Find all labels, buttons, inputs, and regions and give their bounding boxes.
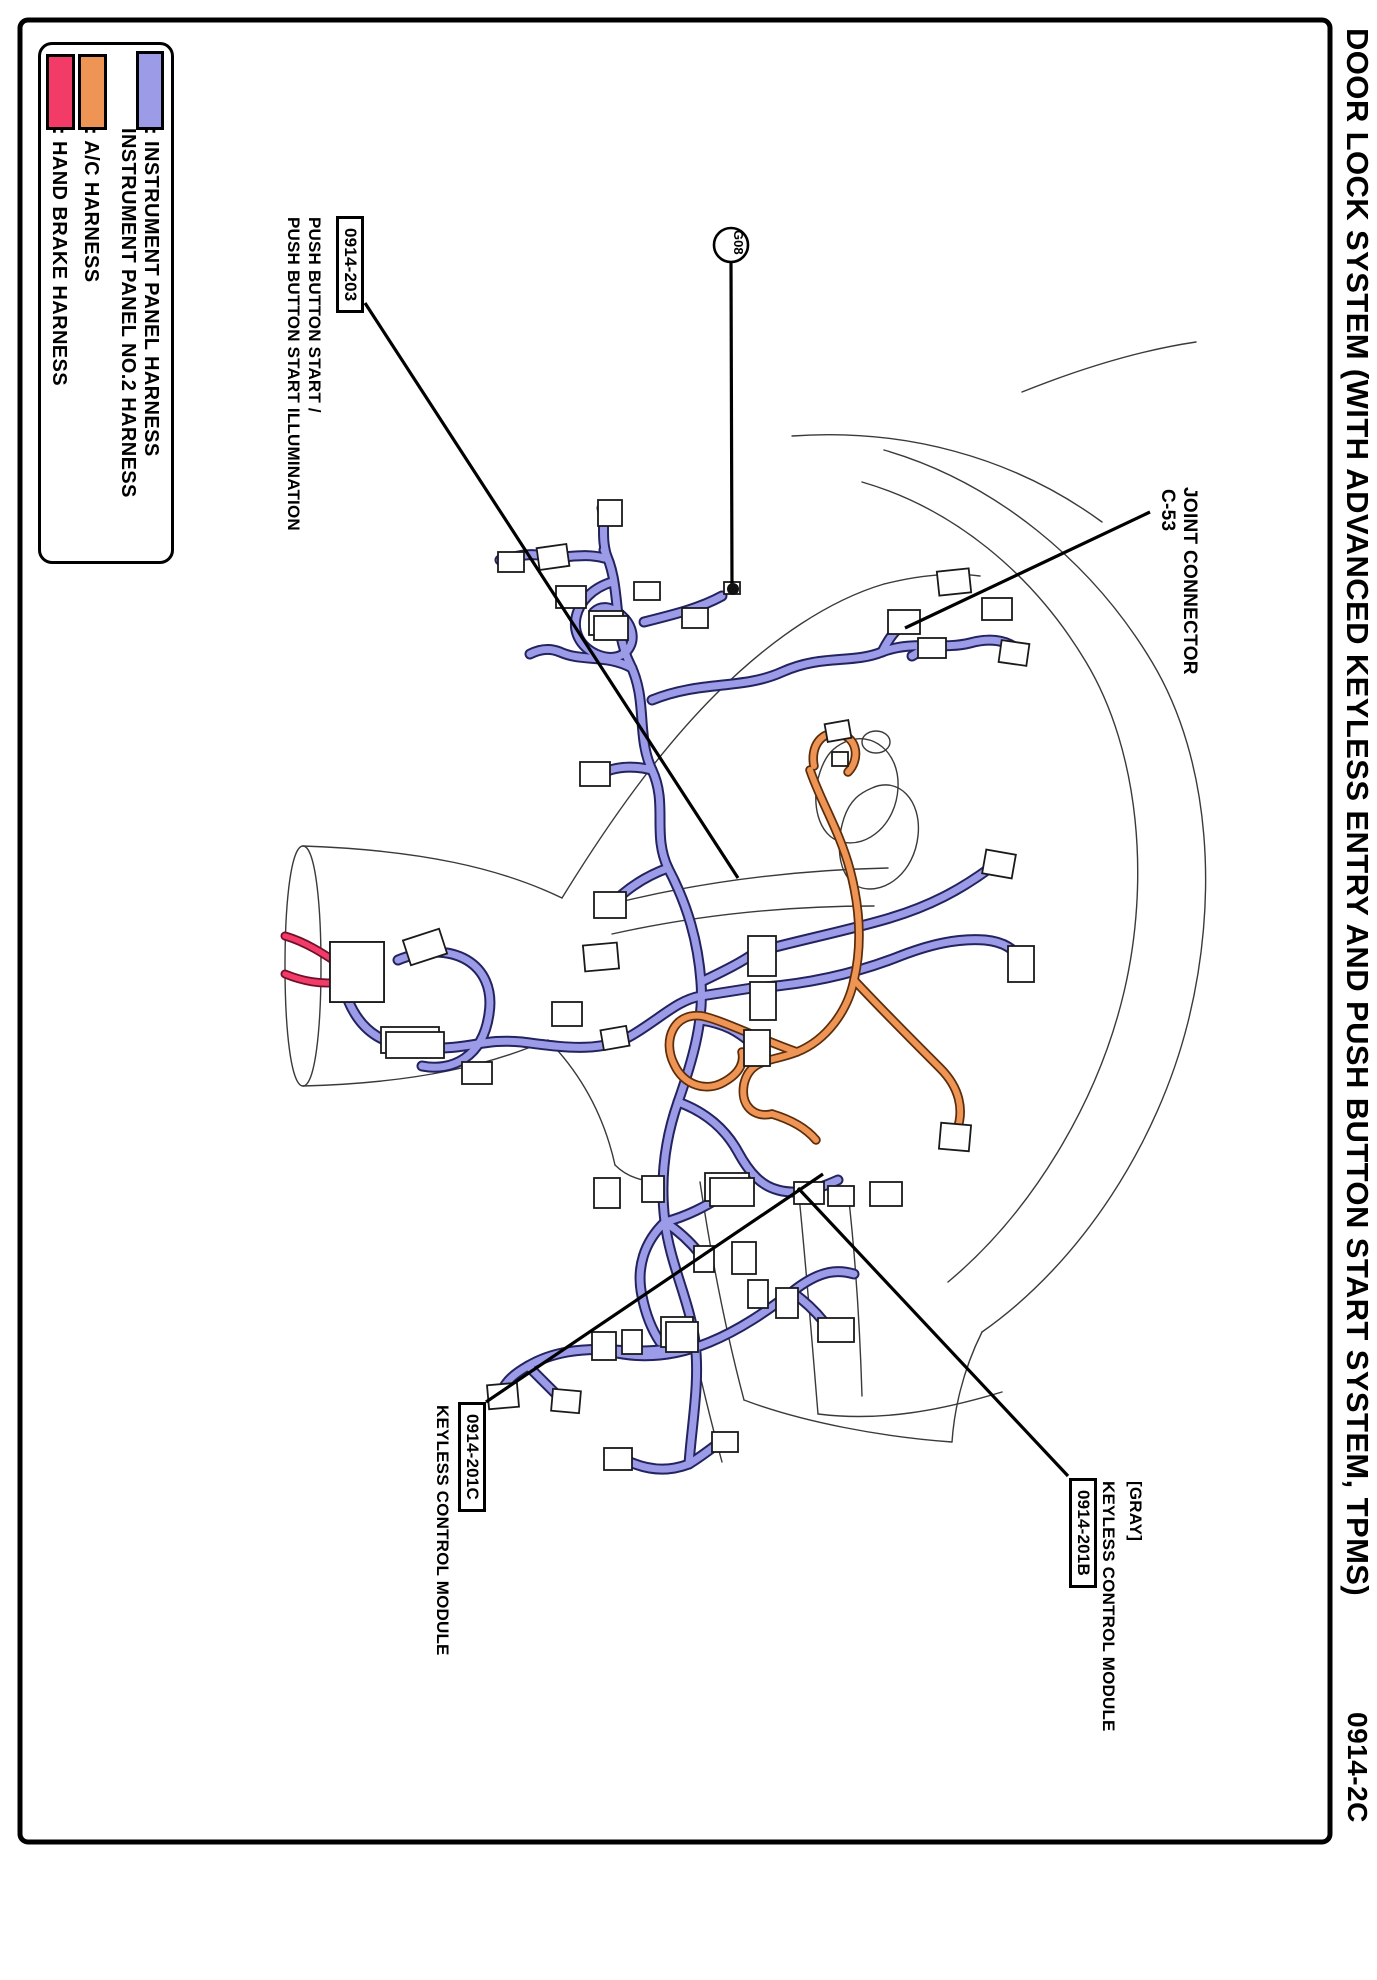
ground-label: G08 — [731, 230, 745, 255]
callout-code-0914-203: 0914-203 — [336, 216, 364, 313]
callout-push-button-line2: PUSH BUTTON START ILLUMINATION — [284, 217, 302, 531]
manual-page: DOOR LOCK SYSTEM (WITH ADVANCED KEYLESS … — [0, 0, 1377, 1980]
callout-code-0914-201C: 0914-201C — [458, 1402, 486, 1512]
page-code: 0914-2C — [1342, 1712, 1372, 1823]
harness-diagram-art — [0, 0, 1377, 1980]
callout-keyless-c-label: KEYLESS CONTROL MODULE — [433, 1405, 451, 1656]
callout-joint-connector: JOINT CONNECTOR — [1178, 487, 1199, 675]
ground-leader — [731, 263, 732, 586]
joint-connector-leader — [905, 512, 1150, 628]
callout-keyless-b-label: KEYLESS CONTROL MODULE — [1099, 1481, 1117, 1732]
callout-code-0914-201B: 0914-201B — [1069, 1478, 1097, 1588]
callout-joint-connector-id: C-53 — [1156, 489, 1177, 531]
legend-swatch-hand-brake — [46, 54, 75, 130]
ground-terminal — [727, 583, 739, 595]
push-button-leader — [365, 303, 738, 878]
legend-label-instrument-panel: : INSTRUMENT PANEL HARNESS — [139, 128, 161, 457]
legend-swatch-ac — [78, 54, 107, 130]
callout-push-button-line1: PUSH BUTTON START / — [305, 217, 323, 413]
legend-label-ac: : A/C HARNESS — [79, 128, 101, 282]
legend-label-hand-brake: : HAND BRAKE HARNESS — [47, 128, 69, 386]
panel-contours — [285, 342, 1206, 1462]
keyless-c-leader — [486, 1174, 823, 1402]
page-title: DOOR LOCK SYSTEM (WITH ADVANCED KEYLESS … — [1341, 28, 1374, 1596]
legend-swatch-instrument-panel — [136, 51, 164, 130]
legend-label-instrument-panel-2: INSTRUMENT PANEL NO.2 HARNESS — [116, 128, 138, 498]
page-frame — [20, 20, 1330, 1842]
callout-keyless-b-gray: [GRAY] — [1126, 1481, 1144, 1541]
